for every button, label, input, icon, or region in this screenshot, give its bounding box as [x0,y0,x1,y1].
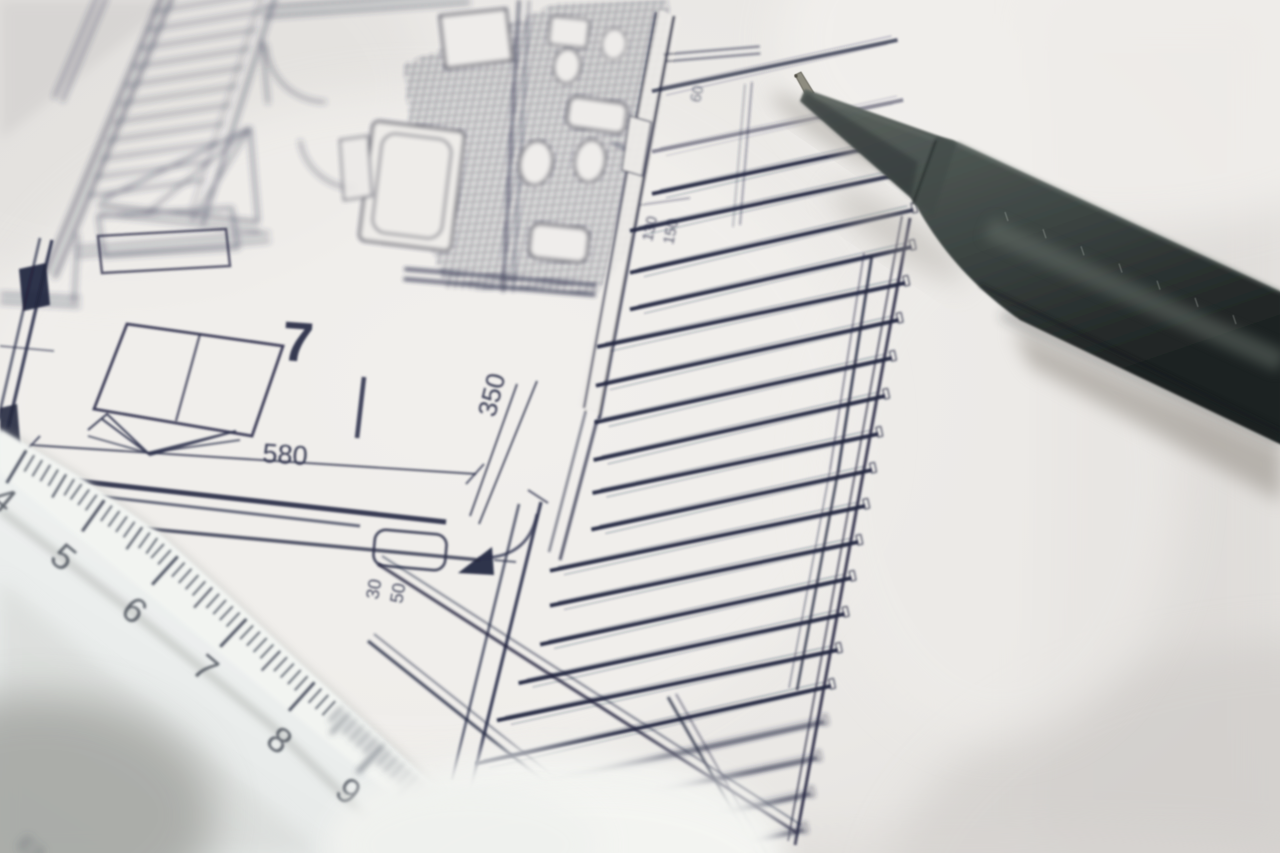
svg-text:7: 7 [280,309,315,374]
svg-text:580: 580 [262,438,309,471]
svg-text:50: 50 [386,581,409,604]
svg-text:30: 30 [362,577,385,600]
svg-text:60: 60 [687,84,707,104]
